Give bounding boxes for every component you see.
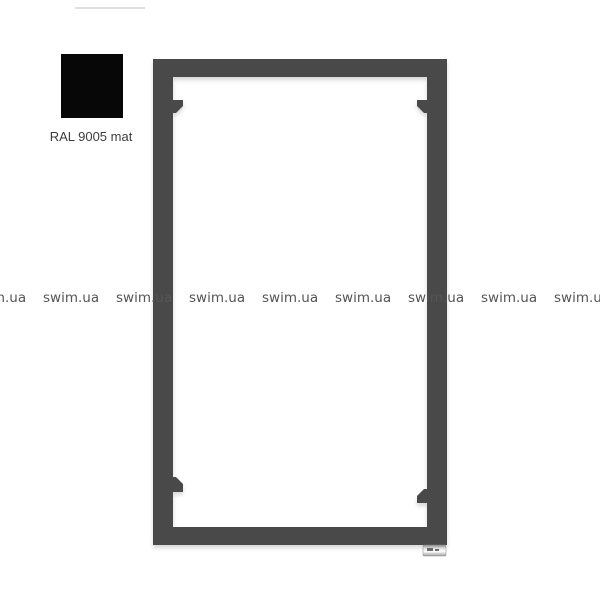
towel-radiator-illustration bbox=[0, 0, 600, 600]
top-bar bbox=[153, 59, 447, 77]
corner-tab bbox=[417, 100, 427, 113]
valve-mark bbox=[427, 548, 433, 551]
bottom-bar bbox=[153, 527, 447, 545]
product-image: RAL 9005 mat swim.uaswim.uaswim.uaswim.u… bbox=[0, 0, 600, 600]
valve-fitting bbox=[423, 545, 446, 556]
right-post bbox=[427, 59, 447, 545]
valve-mark bbox=[435, 549, 439, 551]
left-post bbox=[153, 59, 173, 545]
corner-tab bbox=[173, 477, 183, 492]
corner-tab bbox=[417, 489, 427, 503]
corner-tab bbox=[173, 100, 183, 113]
